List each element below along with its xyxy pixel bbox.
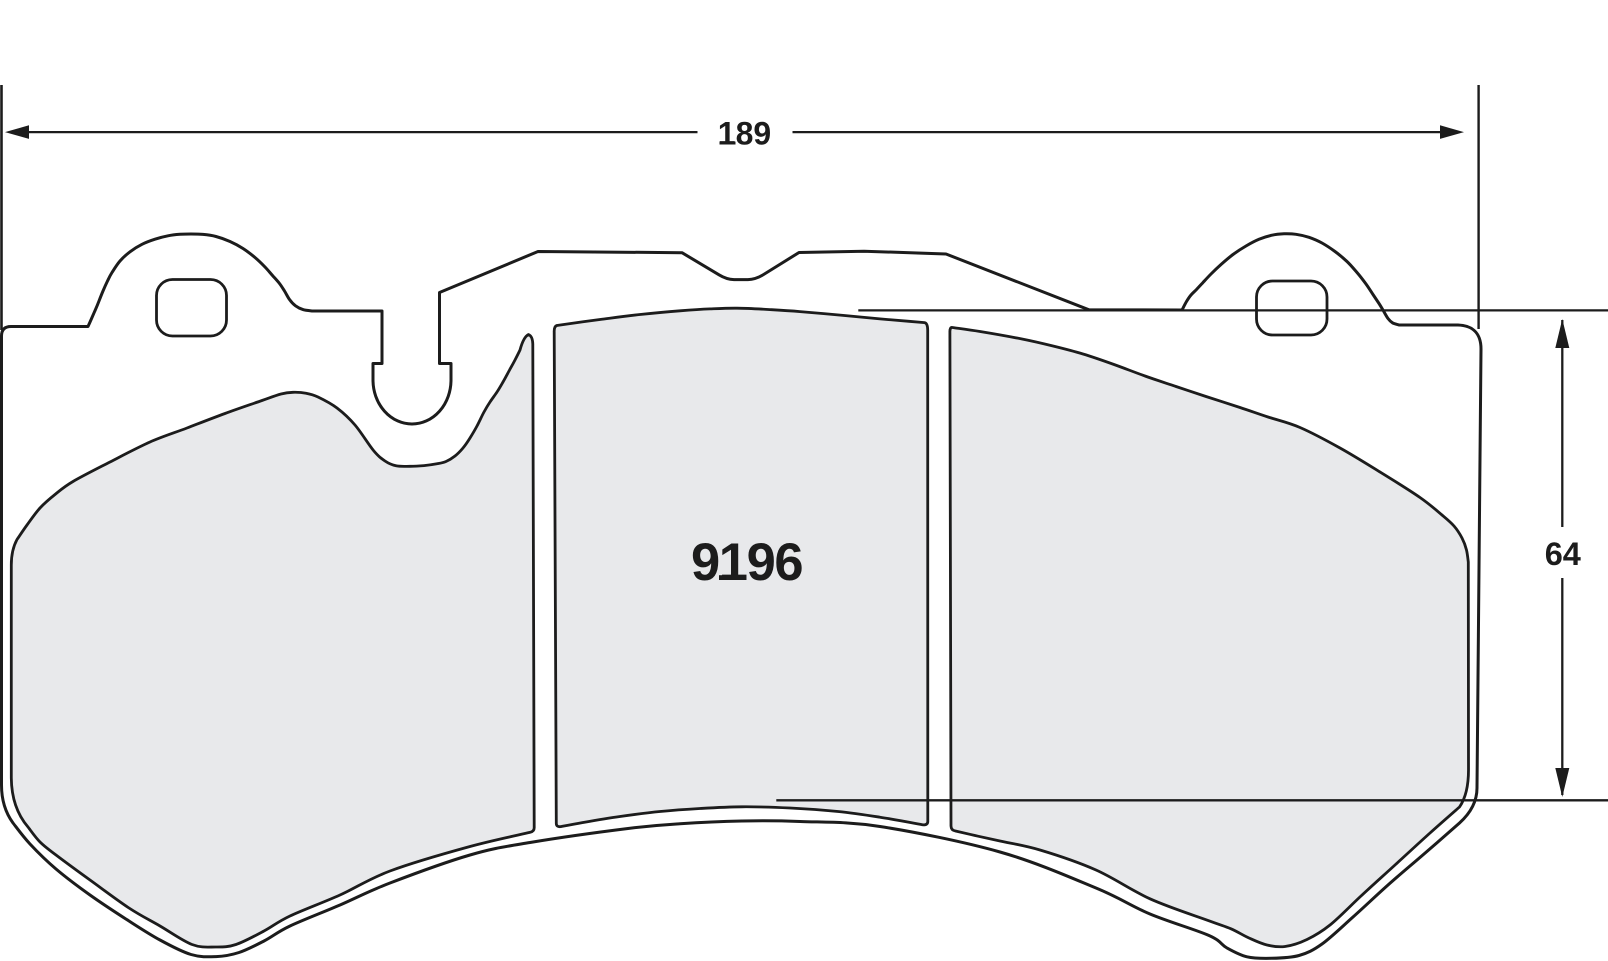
svg-text:189: 189 bbox=[718, 116, 771, 152]
svg-text:9196: 9196 bbox=[691, 533, 802, 592]
svg-text:64: 64 bbox=[1545, 536, 1581, 572]
